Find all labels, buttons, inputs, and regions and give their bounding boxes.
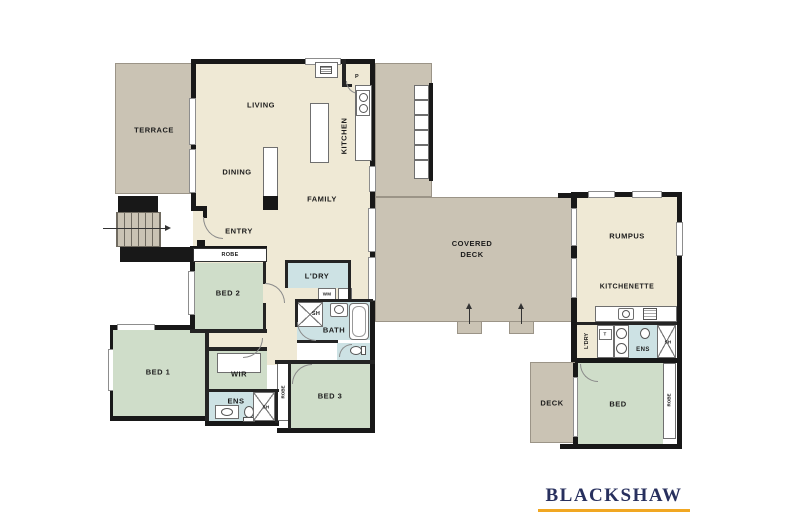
label-laundry-wing: L'DRY bbox=[584, 333, 590, 349]
wall bbox=[571, 192, 577, 208]
label-laundry: L'DRY bbox=[305, 272, 329, 281]
label-ensuite-wing: ENS bbox=[636, 347, 650, 353]
wall bbox=[573, 363, 578, 377]
label-family: FAMILY bbox=[307, 195, 337, 204]
label-wir: WIR bbox=[231, 370, 247, 379]
cooktop-burner-icon bbox=[359, 104, 368, 113]
label-covered-deck-line1: COVERED bbox=[452, 238, 493, 249]
wall bbox=[120, 247, 194, 262]
label-bed1: BED 1 bbox=[146, 368, 171, 377]
window bbox=[188, 271, 195, 315]
label-bed-wing: BED bbox=[609, 400, 626, 409]
window bbox=[189, 149, 196, 193]
wall bbox=[429, 83, 433, 181]
floorplan-canvas: TERRACE COVERED DECK bbox=[0, 0, 790, 527]
cooktop-burner-icon bbox=[359, 93, 368, 102]
deck-step-landing bbox=[414, 160, 429, 179]
label-deck-wing: DECK bbox=[540, 399, 563, 408]
sliding-door bbox=[571, 258, 577, 298]
wall bbox=[263, 262, 266, 284]
stairs-direction-arrow-icon bbox=[165, 225, 171, 231]
window bbox=[189, 98, 196, 145]
deck-step bbox=[414, 100, 429, 115]
stairs-terrace bbox=[116, 212, 161, 247]
wall bbox=[297, 340, 338, 343]
label-pantry: P bbox=[355, 74, 359, 80]
wall bbox=[275, 389, 278, 423]
kitchen-island bbox=[310, 103, 329, 163]
deck-step bbox=[414, 115, 429, 130]
sink-bowl-icon bbox=[622, 310, 630, 318]
wall bbox=[263, 196, 278, 210]
stairs-direction-line bbox=[103, 228, 165, 229]
wall bbox=[191, 59, 375, 64]
wall bbox=[571, 246, 577, 258]
label-kitchenette: KITCHENETTE bbox=[600, 284, 655, 291]
oven-grill-icon bbox=[320, 66, 332, 74]
room-rumpus bbox=[577, 197, 677, 323]
label-robe-wing: ROBE bbox=[667, 393, 672, 406]
sliding-door bbox=[571, 208, 577, 246]
logo-gold-underline bbox=[538, 509, 690, 512]
wall bbox=[110, 416, 207, 421]
step-arrow-icon bbox=[466, 303, 472, 309]
label-bath-shower: SH bbox=[312, 311, 320, 317]
label-dining: DINING bbox=[222, 168, 251, 177]
label-covered-deck-line2: DECK bbox=[452, 249, 493, 260]
bathtub-inner-icon bbox=[352, 306, 366, 337]
wall bbox=[348, 260, 351, 302]
sliding-door bbox=[368, 208, 376, 252]
label-covered-deck: COVERED DECK bbox=[452, 238, 493, 260]
deck-step bbox=[414, 85, 429, 100]
wall bbox=[285, 260, 288, 288]
sliding-door bbox=[573, 377, 578, 437]
deck-step bbox=[414, 145, 429, 160]
label-robe-hall: ROBE bbox=[281, 385, 286, 398]
wall bbox=[285, 260, 351, 263]
deck-step bbox=[414, 130, 429, 145]
label-entry: ENTRY bbox=[225, 227, 253, 236]
wall bbox=[560, 444, 682, 449]
wall bbox=[295, 299, 373, 302]
kitchenette-counter bbox=[595, 306, 677, 322]
sliding-door bbox=[368, 257, 376, 301]
wall bbox=[205, 329, 209, 421]
basin-bowl-icon bbox=[616, 328, 627, 339]
wall bbox=[263, 303, 266, 330]
toilet-tank-icon bbox=[361, 346, 366, 355]
logo-blackshaw: BLACKSHAW bbox=[536, 485, 692, 507]
wall bbox=[190, 329, 267, 333]
wall bbox=[207, 389, 279, 392]
label-bed3: BED 3 bbox=[318, 392, 343, 401]
basin-bowl-icon bbox=[221, 408, 233, 416]
window bbox=[632, 191, 662, 198]
step-arrow-icon bbox=[518, 303, 524, 309]
step-arrow-line bbox=[469, 308, 470, 324]
wall bbox=[118, 196, 158, 212]
label-shower-wing: SH bbox=[665, 340, 672, 345]
window bbox=[676, 222, 683, 256]
window bbox=[369, 166, 376, 192]
wall bbox=[277, 428, 375, 433]
label-washing-machine: WM bbox=[323, 292, 332, 297]
toilet-icon bbox=[640, 328, 650, 339]
basin-bowl-icon bbox=[616, 343, 627, 354]
cooktop-grid-icon bbox=[643, 308, 657, 320]
label-terrace: TERRACE bbox=[134, 126, 174, 135]
label-kitchen: KITCHEN bbox=[340, 118, 349, 155]
label-ensuite-shower: SH bbox=[263, 405, 270, 410]
label-rumpus: RUMPUS bbox=[609, 232, 645, 241]
kitchen-bench bbox=[263, 147, 278, 199]
wall bbox=[288, 363, 291, 429]
label-bed2: BED 2 bbox=[216, 289, 241, 298]
wall bbox=[677, 363, 682, 449]
step-arrow-line bbox=[521, 308, 522, 324]
label-trough: T bbox=[603, 332, 606, 337]
label-robe-bed2: ROBE bbox=[221, 252, 238, 258]
label-living: LIVING bbox=[247, 101, 275, 110]
basin-bowl-icon bbox=[334, 305, 344, 314]
wall bbox=[677, 192, 682, 364]
window bbox=[588, 191, 615, 198]
label-bath: BATH bbox=[323, 326, 345, 335]
wall bbox=[205, 421, 279, 426]
